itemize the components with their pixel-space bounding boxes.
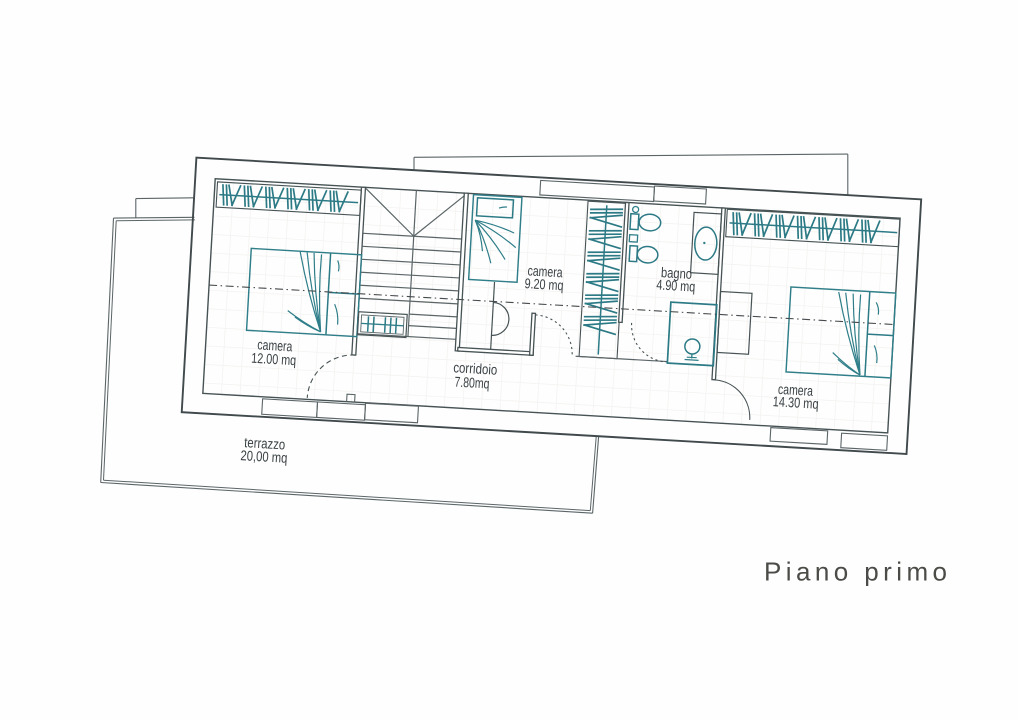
svg-text:7.80mq: 7.80mq	[454, 375, 490, 393]
svg-text:Piano primo: Piano primo	[764, 557, 947, 587]
svg-text:9.20 mq: 9.20 mq	[524, 276, 564, 294]
svg-text:4.90 mq: 4.90 mq	[656, 277, 696, 295]
svg-text:14.30 mq: 14.30 mq	[772, 394, 819, 413]
svg-text:20,00 mq: 20,00 mq	[240, 448, 288, 467]
svg-text:12.00 mq: 12.00 mq	[251, 351, 297, 370]
